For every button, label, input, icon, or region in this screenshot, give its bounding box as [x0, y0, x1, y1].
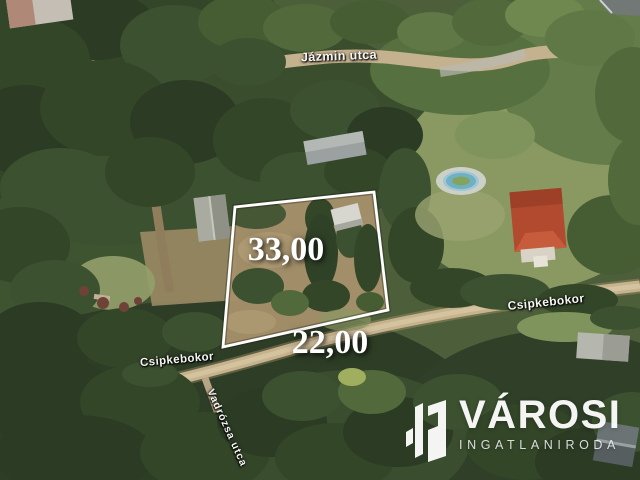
watermark-varosi-ingatlaniroda: VÁROSI INGATLANIRODA — [402, 394, 621, 462]
swimming-pool — [436, 167, 486, 195]
aerial-map: Jázmin utca Csipkebokor Csipkebokor Vadr… — [0, 0, 640, 480]
city-buildings-icon — [402, 394, 448, 462]
street-label-jazmin-utca: Jázmin utca — [301, 48, 377, 65]
plot-frontage-length-label: 22,00 — [292, 324, 369, 362]
plot-side-length-label: 33,00 — [248, 231, 325, 269]
watermark-brand-name: VÁROSI — [459, 394, 621, 436]
watermark-brand-subtitle: INGATLANIRODA — [459, 438, 621, 452]
building-shed-right — [576, 332, 630, 362]
building-barn — [193, 194, 230, 242]
